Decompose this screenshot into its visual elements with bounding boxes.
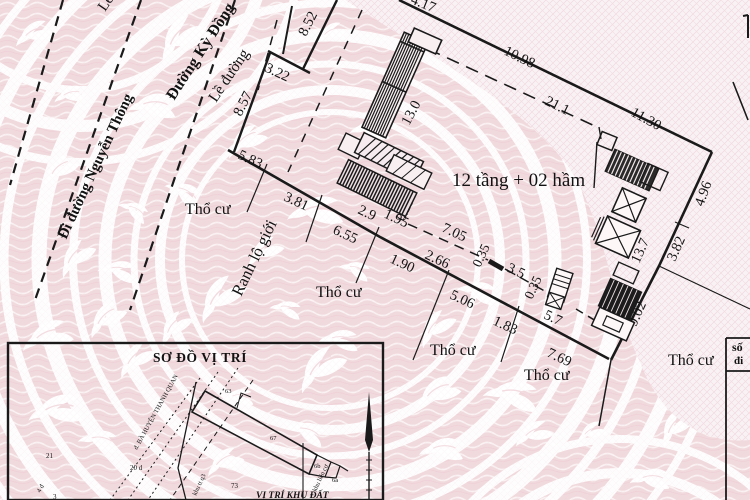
svg-text:21: 21 bbox=[46, 452, 54, 460]
svg-text:Thổ cư: Thổ cư bbox=[185, 201, 232, 218]
svg-text:SƠ ĐỒ VỊ TRÍ: SƠ ĐỒ VỊ TRÍ bbox=[153, 350, 247, 365]
svg-text:6a: 6a bbox=[332, 477, 338, 484]
svg-text:Thổ cư: Thổ cư bbox=[430, 342, 477, 359]
svg-text:3: 3 bbox=[53, 493, 57, 500]
svg-text:63: 63 bbox=[225, 388, 232, 395]
svg-text:20 d: 20 d bbox=[130, 464, 143, 472]
svg-text:Thổ cư: Thổ cư bbox=[668, 352, 715, 369]
svg-text:67: 67 bbox=[270, 435, 277, 442]
svg-text:Thổ cư: Thổ cư bbox=[524, 367, 571, 384]
svg-text:Thổ cư: Thổ cư bbox=[316, 284, 363, 301]
svg-text:số: số bbox=[732, 340, 744, 354]
svg-text:đi: đi bbox=[734, 355, 743, 367]
svg-text:6b: 6b bbox=[314, 463, 321, 470]
svg-text:73: 73 bbox=[231, 482, 239, 490]
svg-text:12 tầng + 02 hầm: 12 tầng + 02 hầm bbox=[452, 170, 585, 191]
